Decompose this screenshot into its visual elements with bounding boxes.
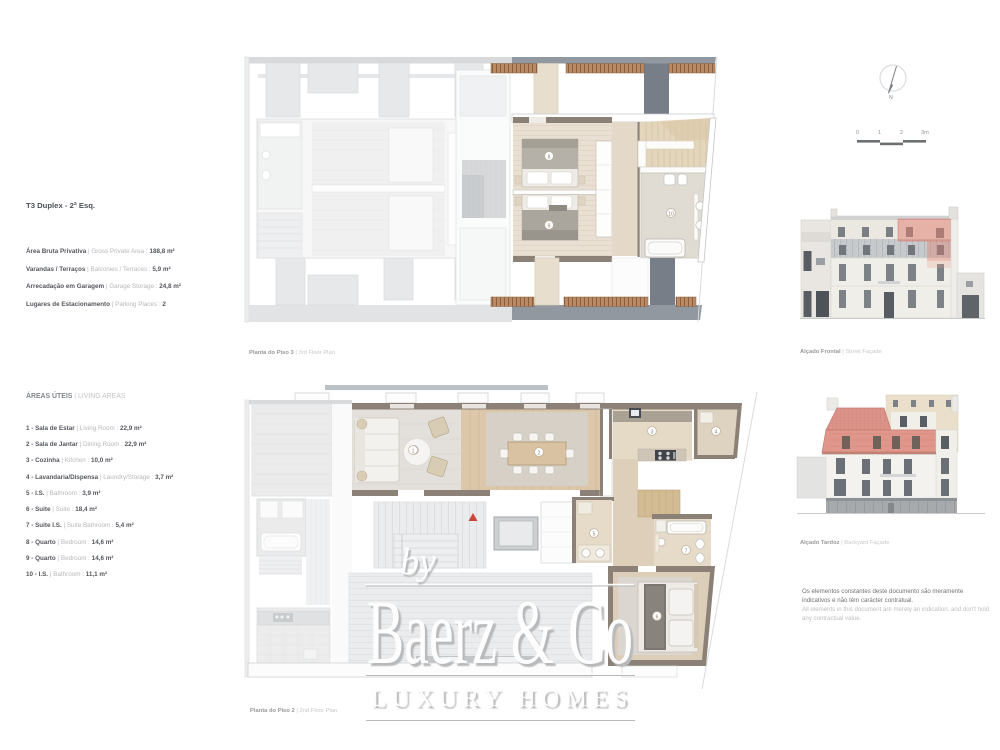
svg-text:1 - Sala de Estar | Living Roo: 1 - Sala de Estar | Living Room : 22,9 m… (26, 425, 142, 432)
svg-text:9 - Quarto | Bedroom : 14,6 m: 9 - Quarto | Bedroom : 14,6 m² (26, 555, 113, 562)
svg-text:Alçado Tardoz | Backyard Façad: Alçado Tardoz | Backyard Façade (800, 540, 889, 546)
svg-text:6: 6 (656, 614, 659, 620)
svg-text:0: 0 (856, 130, 859, 136)
svg-text:ÁREAS ÚTEIS | LIVING AREAS: ÁREAS ÚTEIS | LIVING AREAS (26, 391, 126, 400)
svg-text:1: 1 (878, 130, 881, 136)
svg-text:indicativos e não têm carácter: indicativos e não têm carácter contratua… (802, 597, 913, 604)
svg-text:5: 5 (593, 531, 596, 537)
svg-text:Lugares de Estacionamento | Pa: Lugares de Estacionamento | Parking Plac… (26, 301, 166, 308)
svg-text:3 - Cozinha | Kitchen : 10,0: 3 - Cozinha | Kitchen : 10,0 m² (26, 457, 113, 464)
svg-text:by: by (400, 541, 436, 583)
svg-text:N: N (889, 95, 893, 101)
svg-text:Planta do Piso 3 | 3rd Floor P: Planta do Piso 3 | 3rd Floor Plan (249, 350, 335, 356)
svg-text:All elements in this document: All elements in this document are merely… (802, 606, 989, 613)
svg-text:7 - Suite I.S. | Suite Bathroo: 7 - Suite I.S. | Suite Bathroom : 5,4 m² (26, 522, 134, 529)
svg-text:3: 3 (651, 429, 654, 435)
svg-text:Arrecadação em Garagem | Garag: Arrecadação em Garagem | Garage Storage … (26, 283, 181, 290)
svg-text:5 - I.S. | Bathroom : 3,9 m²: 5 - I.S. | Bathroom : 3,9 m² (26, 490, 100, 497)
svg-text:LUXURY HOMES: LUXURY HOMES (371, 685, 633, 712)
svg-text:4 - Lavandaria/Dispensa | Laun: 4 - Lavandaria/Dispensa | Laundry/Storag… (26, 474, 173, 481)
svg-text:Varandas / Terraços | Balconie: Varandas / Terraços | Balconies / Terrac… (26, 266, 171, 273)
svg-text:Planta do Piso 2 | 2nd Floor P: Planta do Piso 2 | 2nd Floor Plan (250, 708, 337, 714)
svg-text:any contractual value.: any contractual value. (802, 615, 862, 622)
svg-text:6 - Suite | Suite : 18,4 m²: 6 - Suite | Suite : 18,4 m² (26, 506, 97, 513)
svg-text:Alçado Frontal | Street Façade: Alçado Frontal | Street Façade (800, 349, 882, 355)
svg-text:2: 2 (900, 130, 903, 136)
svg-text:8 - Quarto | Bedroom : 14,6 m: 8 - Quarto | Bedroom : 14,6 m² (26, 539, 113, 546)
svg-text:1: 1 (412, 448, 415, 454)
svg-text:2: 2 (538, 450, 541, 456)
svg-text:7: 7 (685, 548, 688, 554)
svg-text:8: 8 (548, 154, 551, 160)
svg-text:10 - I.S. | Bathroom : 11,1 m: 10 - I.S. | Bathroom : 11,1 m² (26, 571, 107, 578)
svg-text:2 - Sala de Jantar | Dining Ro: 2 - Sala de Jantar | Dining Room : 22,9 … (26, 441, 146, 448)
svg-text:Área Bruta Privativa | Gross P: Área Bruta Privativa | Gross Private Are… (26, 246, 175, 255)
svg-text:3m: 3m (921, 130, 929, 136)
svg-text:Os elementos constantes deste: Os elementos constantes deste documento … (802, 588, 964, 595)
svg-text:9: 9 (548, 223, 551, 229)
svg-text:T3 Duplex - 2ª Esq.: T3 Duplex - 2ª Esq. (26, 201, 95, 210)
svg-text:Baerz & Co: Baerz & Co (367, 581, 633, 683)
svg-text:10: 10 (668, 211, 674, 217)
svg-text:4: 4 (715, 429, 718, 435)
